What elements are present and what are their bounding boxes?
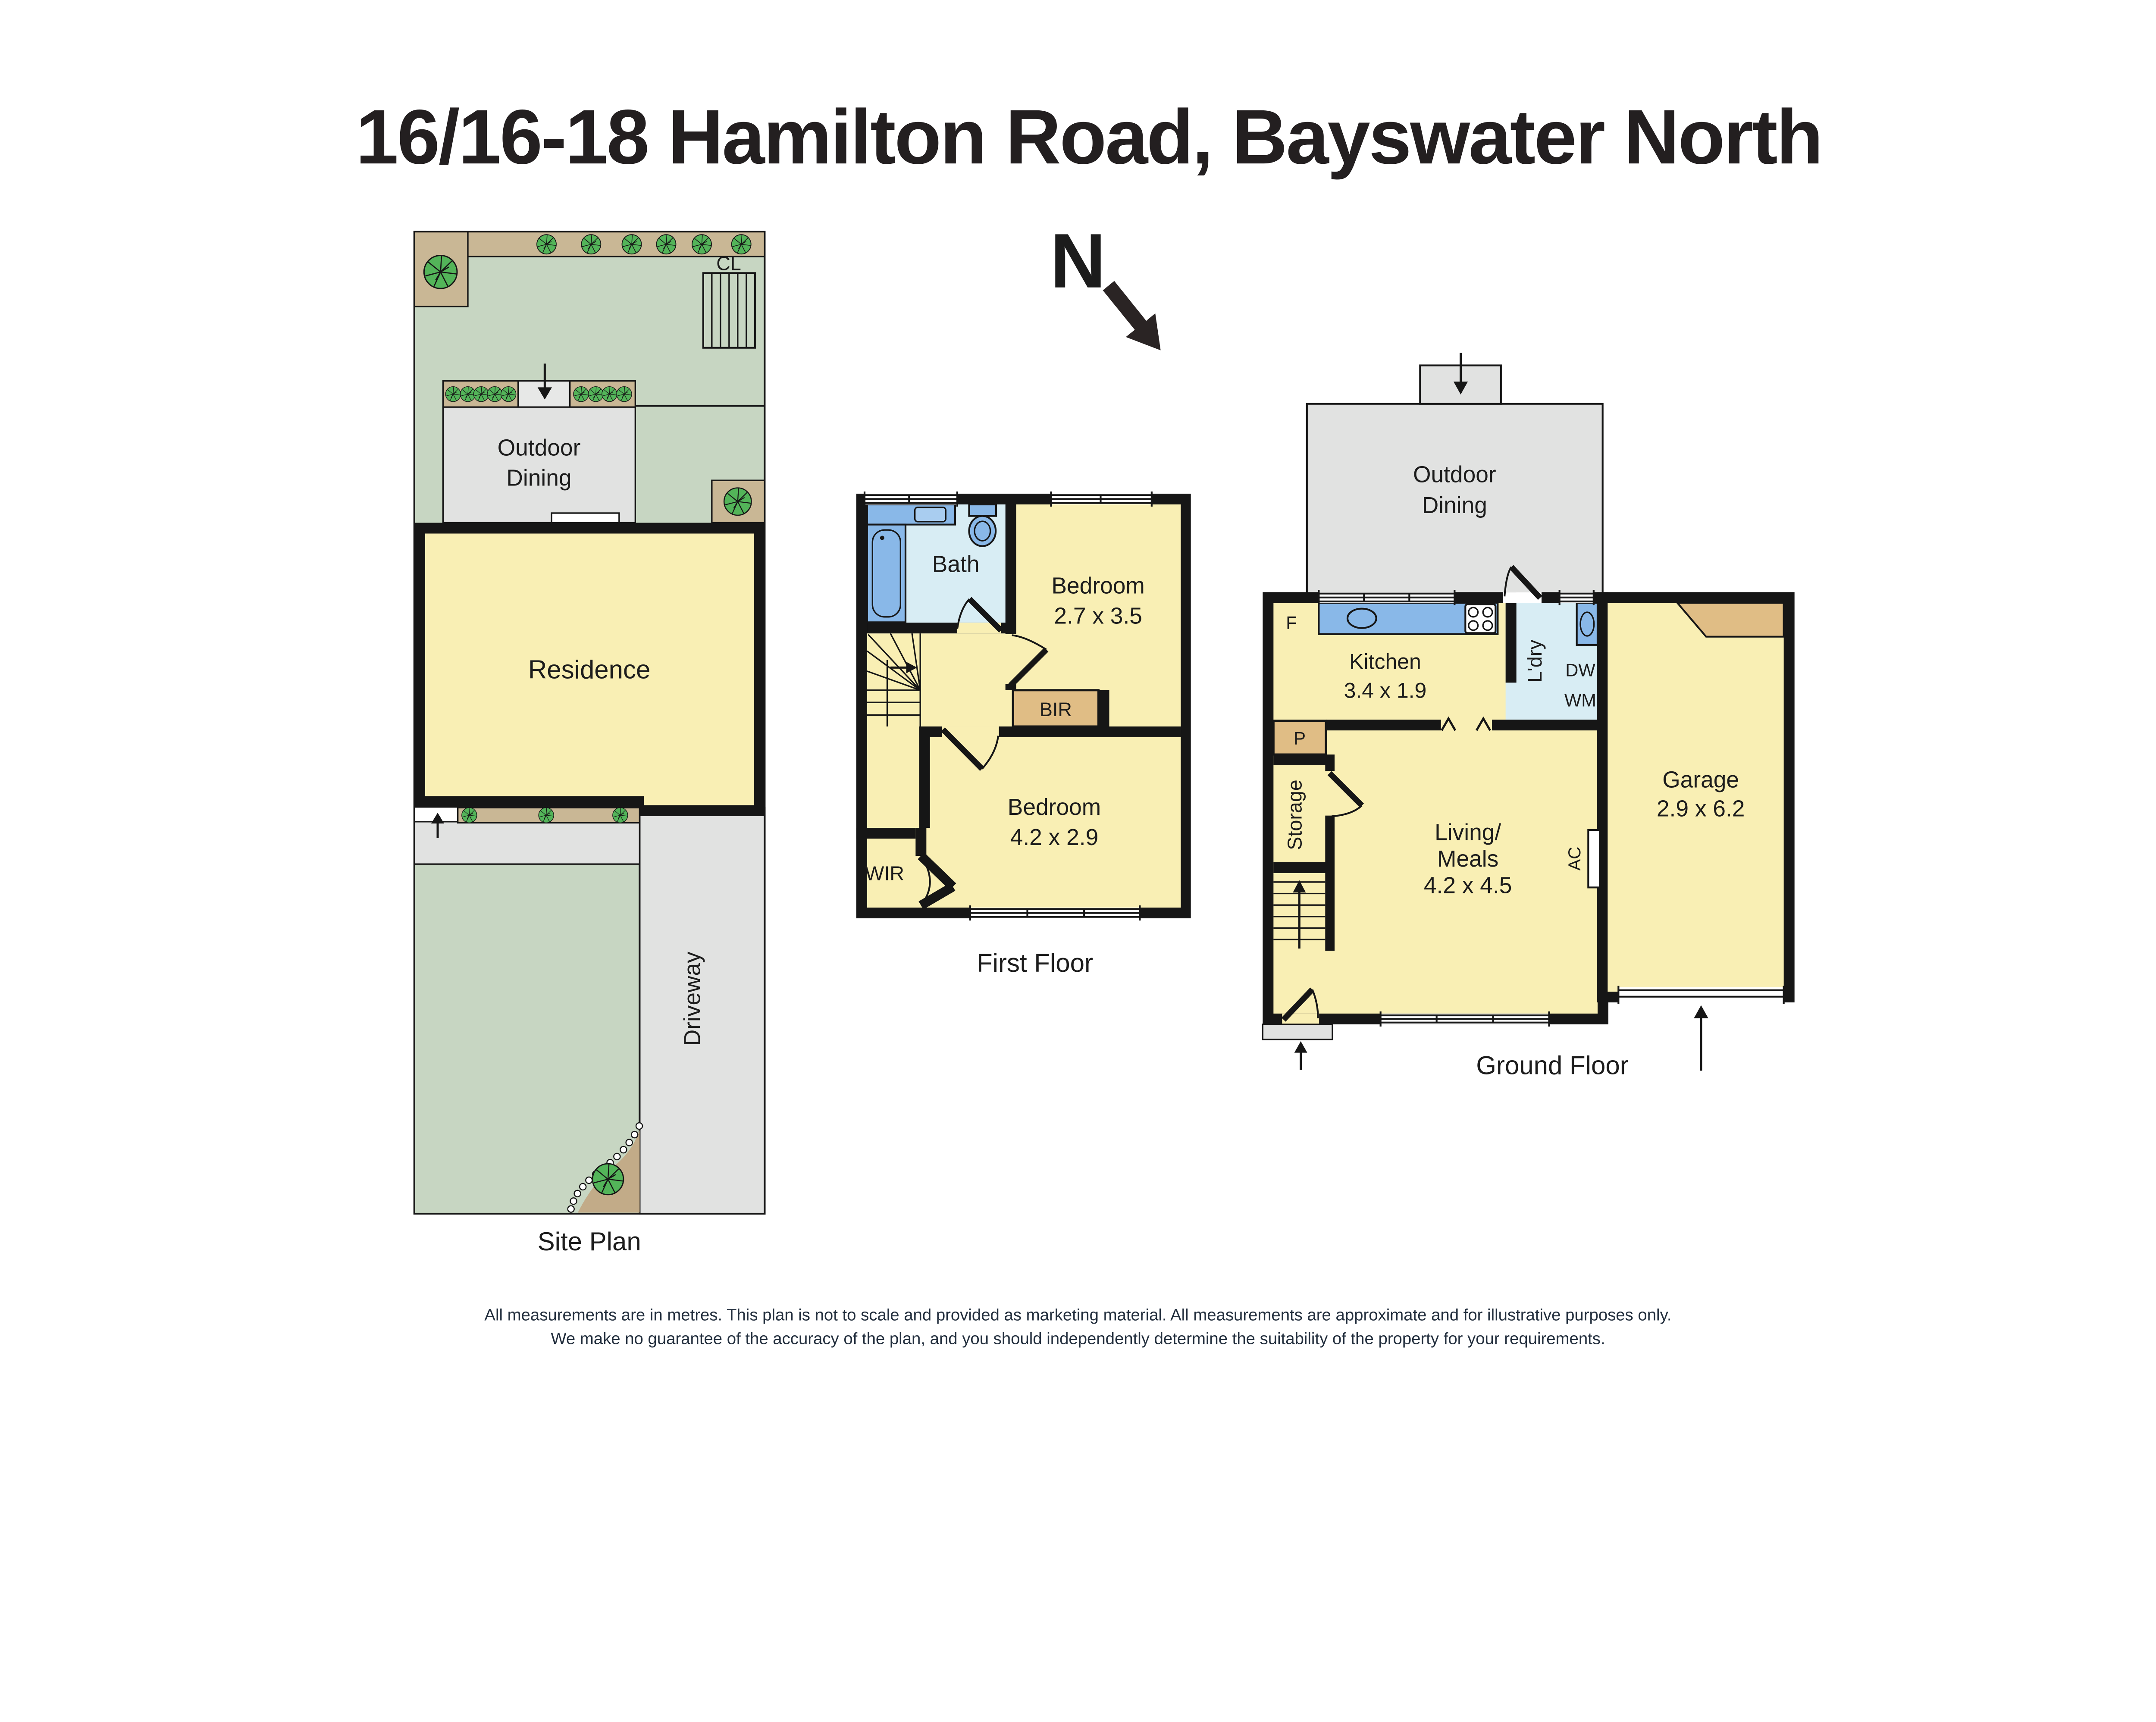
north-label: N: [1050, 218, 1106, 304]
bush-icon: [617, 387, 632, 402]
ff-window-top-left: [865, 492, 957, 507]
gf-window-top-left: [1319, 590, 1454, 605]
gf-wall: [1273, 862, 1335, 873]
bush-icon: [602, 387, 617, 402]
toilet-icon: [969, 504, 996, 546]
tree-icon: [724, 488, 751, 515]
bush-icon: [501, 387, 516, 402]
ff-wall: [919, 737, 930, 828]
bush-icon: [445, 387, 461, 402]
first-floor-plan: BIR: [856, 492, 1191, 977]
gf-garage-dims: 2.9 x 6.2: [1657, 796, 1745, 821]
gf-laundry-label: L'dry: [1523, 639, 1546, 683]
bathtub-icon: [867, 525, 906, 623]
vanity-icon: [867, 504, 955, 525]
gf-ac-label: AC: [1565, 847, 1584, 871]
ff-bed1-label: Bedroom: [1051, 573, 1144, 599]
site-porch-step: [552, 513, 619, 523]
bush-icon: [462, 808, 477, 823]
walkway: [414, 822, 639, 864]
tree-icon: [581, 235, 601, 254]
gf-wall: [1325, 816, 1335, 951]
site-plan-label: Site Plan: [538, 1227, 641, 1256]
bush-icon: [613, 808, 628, 823]
ac-unit: [1588, 830, 1600, 887]
gf-entry-mat: [1263, 1024, 1332, 1039]
ff-bath-label: Bath: [932, 552, 980, 577]
page-title: 16/16-18 Hamilton Road, Bayswater North: [356, 94, 1822, 180]
ff-window-bottom: [970, 905, 1140, 920]
gf-fridge-label: F: [1286, 612, 1297, 632]
ff-bed2-label: Bedroom: [1008, 795, 1101, 820]
gf-kitchen-dims: 3.4 x 1.9: [1344, 678, 1427, 702]
gf-pantry-label: P: [1294, 728, 1306, 748]
laundry-trough-icon: [1577, 603, 1598, 645]
tree-icon: [622, 235, 642, 254]
residence-label: Residence: [528, 655, 650, 684]
gf-storage-label: Storage: [1283, 780, 1306, 850]
ff-wall: [1006, 504, 1016, 634]
gf-window-top-right: [1560, 590, 1594, 605]
gf-wall: [1325, 765, 1335, 771]
gf-wm-label: WM: [1564, 690, 1596, 710]
kitchen-counter-icon: [1319, 603, 1498, 634]
clothesline-label: CL: [716, 253, 741, 275]
ground-floor-plan: Outdoor Dining Garage 2.9 x 6.2: [1263, 353, 1794, 1080]
ff-wall: [915, 828, 926, 856]
site-plan: Outdoor Dining CL Residence: [414, 232, 765, 1255]
gf-wall: [1326, 720, 1441, 730]
first-floor-label: First Floor: [977, 949, 1093, 977]
gf-living-label1: Living/: [1435, 820, 1501, 845]
ff-bir-label: BIR: [1040, 698, 1072, 720]
tree-icon: [592, 1164, 624, 1195]
driveway-label: Driveway: [680, 952, 705, 1046]
bush-icon: [573, 387, 589, 402]
ff-wir-label: WIR: [865, 862, 904, 885]
floorplan-canvas: 16/16-18 Hamilton Road, Bayswater North …: [0, 0, 2156, 1435]
ff-window-top-right: [1051, 492, 1152, 507]
stove-icon: [1465, 604, 1495, 633]
kitchen-sink-icon: [1347, 609, 1376, 628]
disclaimer-line2: We make no guarantee of the accuracy of …: [551, 1329, 1605, 1348]
ff-wall: [856, 828, 915, 839]
north-arrow-icon: [1103, 281, 1161, 351]
floorplan-page: 16/16-18 Hamilton Road, Bayswater North …: [0, 0, 2156, 1435]
bush-icon: [487, 387, 502, 402]
bush-icon: [539, 808, 554, 823]
gf-garage-label: Garage: [1662, 767, 1739, 793]
site-outdoor-dining-label2: Dining: [506, 466, 571, 491]
bush-icon: [473, 387, 489, 402]
bush-icon: [588, 387, 603, 402]
bush-icon: [461, 387, 476, 402]
tree-icon: [692, 235, 711, 254]
gf-window-bottom: [1381, 1011, 1549, 1027]
site-outdoor-dining: [443, 407, 636, 523]
gf-wall: [1273, 755, 1335, 765]
ground-floor-label: Ground Floor: [1476, 1051, 1628, 1080]
north-indicator: N: [1050, 218, 1160, 351]
ff-bed2-dims: 4.2 x 2.9: [1010, 825, 1099, 850]
gf-outdoor-dining-label2: Dining: [1422, 493, 1487, 518]
gf-outdoor-dining-label1: Outdoor: [1413, 462, 1496, 487]
gf-wall: [1506, 592, 1517, 683]
ff-wall: [1099, 690, 1109, 726]
tree-icon: [537, 235, 556, 254]
disclaimer-line1: All measurements are in metres. This pla…: [484, 1306, 1671, 1324]
tree-icon: [424, 255, 457, 288]
gf-living-dims: 4.2 x 4.5: [1424, 873, 1512, 899]
ff-bed1-dims: 2.7 x 3.5: [1054, 604, 1142, 629]
gf-dw-label: DW: [1565, 660, 1595, 680]
gf-living-label2: Meals: [1437, 846, 1498, 872]
gf-wall: [1492, 720, 1598, 730]
tree-icon: [732, 235, 751, 254]
gf-kitchen-label: Kitchen: [1349, 650, 1421, 674]
site-outdoor-dining-label1: Outdoor: [498, 435, 581, 461]
gf-garage-door: [1618, 986, 1783, 1004]
gf-garage-arrow: [1694, 1005, 1708, 1071]
tree-icon: [657, 235, 676, 254]
